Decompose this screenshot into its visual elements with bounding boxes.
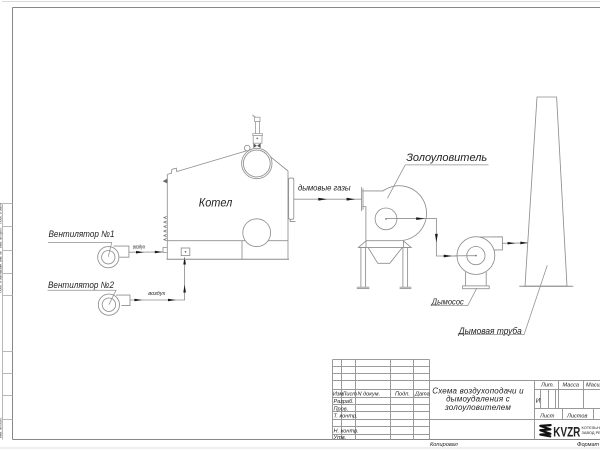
svg-text:Н. контр.: Н. контр. (334, 429, 359, 435)
svg-text:Утв.: Утв. (333, 435, 347, 441)
svg-text:Вентилятор №1: Вентилятор №1 (49, 229, 115, 239)
svg-text:Котел: Котел (199, 196, 233, 210)
svg-text:N докум.: N докум. (358, 392, 381, 398)
svg-text:Пров.: Пров. (334, 406, 349, 412)
svg-text:Т. контр.: Т. контр. (334, 413, 358, 419)
svg-text:золоуловителем: золоуловителем (444, 403, 511, 412)
svg-text:ЗАВОД РЕЗ: ЗАВОД РЕЗ (582, 430, 600, 435)
svg-text:Вентилятор №2: Вентилятор №2 (48, 280, 114, 290)
svg-text:Инв. № дубл.: Инв. № дубл. (0, 227, 3, 248)
svg-text:Подп. и дата: Подп. и дата (0, 203, 3, 224)
svg-text:Лист: Лист (342, 392, 358, 398)
svg-text:Инв. № подл.: Инв. № подл. (0, 417, 3, 438)
svg-text:Листов: Листов (566, 413, 587, 419)
svg-text:дымовые газы: дымовые газы (298, 184, 351, 193)
svg-text:Подп. и дата: Подп. и дата (0, 272, 3, 293)
svg-text:KVZR: KVZR (553, 424, 580, 440)
svg-text:воздух: воздух (148, 291, 166, 297)
svg-text:Золоуловитель: Золоуловитель (406, 152, 487, 164)
svg-text:Формат А2: Формат А2 (577, 442, 600, 448)
svg-text:Масшта: Масшта (586, 383, 600, 389)
svg-text:Масса: Масса (563, 383, 580, 389)
svg-text:Дата: Дата (414, 392, 430, 398)
svg-text:Взам. инв. №: Взам. инв. № (0, 251, 3, 272)
svg-text:воздух: воздух (133, 245, 146, 251)
svg-text:Лист: Лист (539, 413, 555, 419)
svg-text:Копировал: Копировал (430, 442, 459, 448)
svg-text:Разраб.: Разраб. (334, 399, 354, 405)
svg-text:И: И (536, 397, 541, 404)
svg-text:Лит.: Лит. (540, 383, 554, 389)
svg-text:Подп.: Подп. (395, 392, 410, 398)
